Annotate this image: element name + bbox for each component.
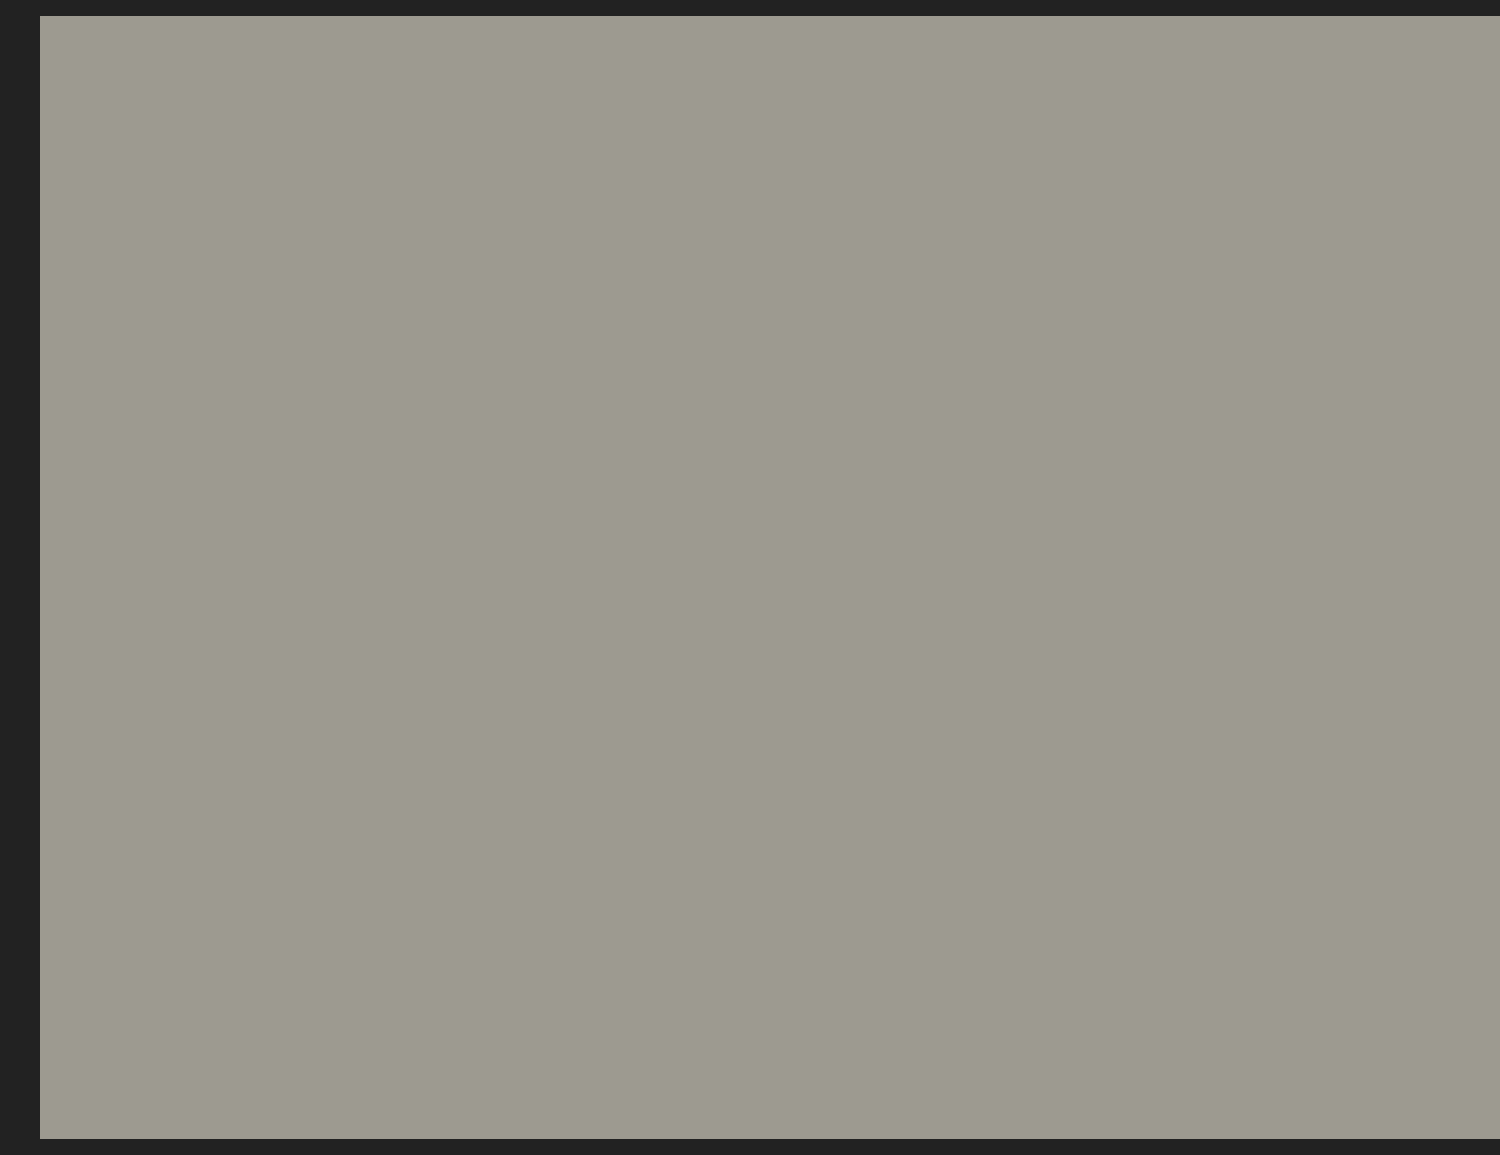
aerial-photo [40,16,1500,1139]
